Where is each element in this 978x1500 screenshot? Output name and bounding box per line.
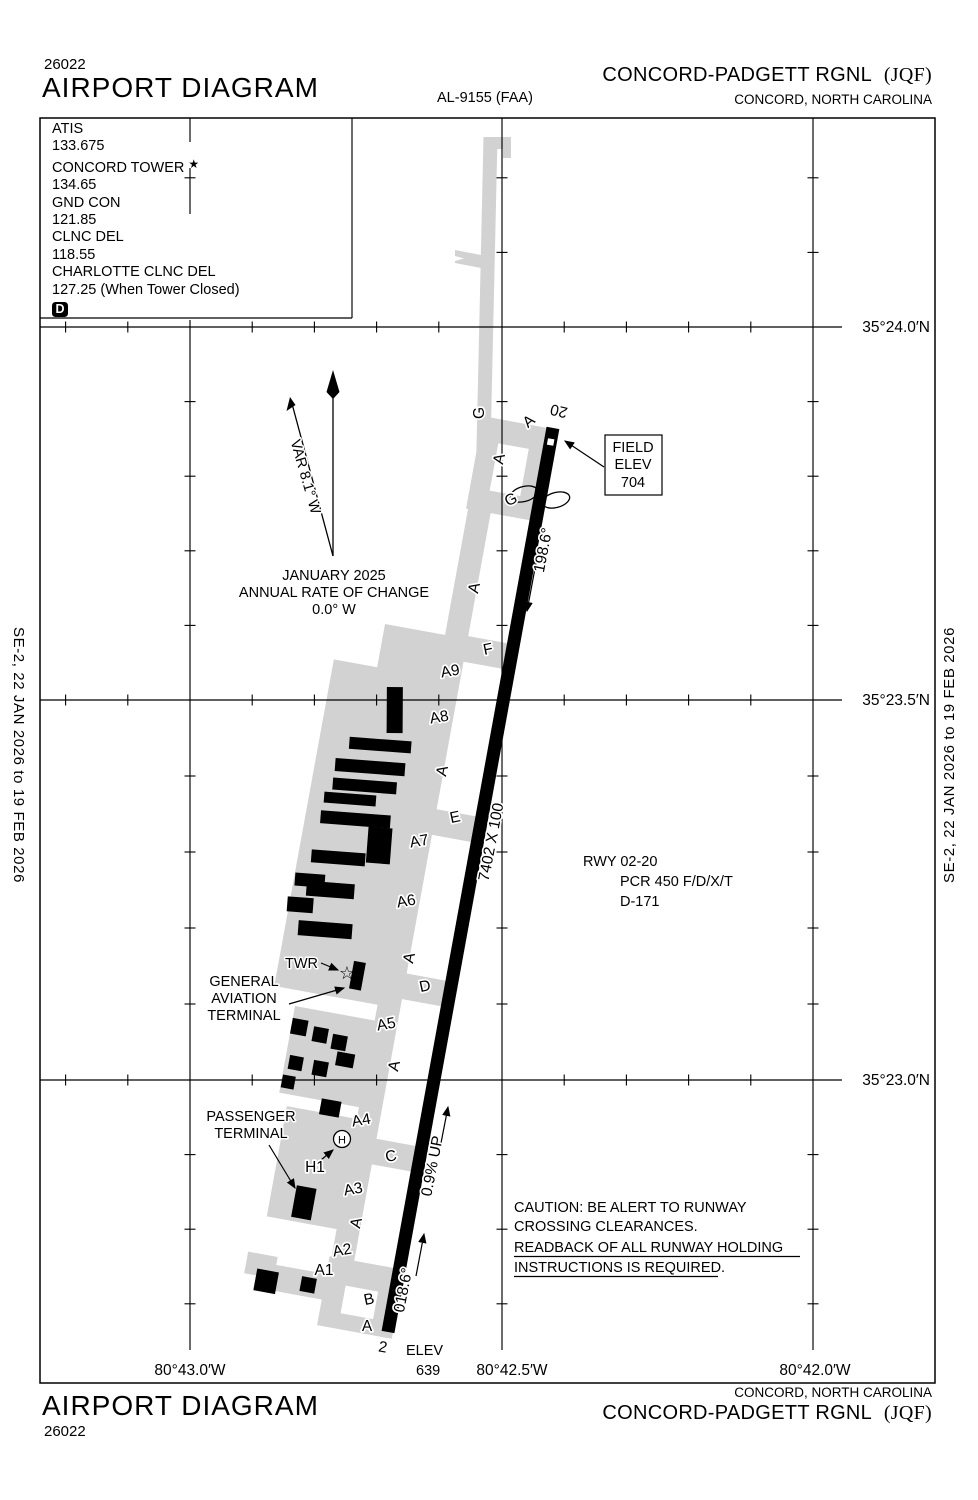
taxiway-a9-label: A9: [439, 662, 461, 682]
h1-label: H1: [305, 1159, 325, 1176]
caution-line2: CROSSING CLEARANCES.: [514, 1219, 698, 1235]
caution-note: CAUTION: BE ALERT TO RUNWAY CROSSING CLE…: [514, 1200, 800, 1277]
twr-label: TWR: [285, 956, 318, 972]
taxiway-a2-label: A2: [331, 1241, 353, 1261]
runway-info-line2: PCR 450 F/D/X/T: [620, 874, 733, 890]
runway-info-line3: D-171: [620, 894, 660, 910]
caution-line3: READBACK OF ALL RUNWAY HOLDING: [514, 1240, 783, 1256]
ga-building: [311, 1060, 328, 1077]
taxiway-a3-label: A3: [342, 1180, 364, 1200]
magnetic-north-arrowhead-icon: [287, 397, 296, 411]
airport-diagram-page: SE-2, 22 JAN 2026 to 19 FEB 2026 SE-2, 2…: [0, 0, 978, 1500]
field-elev-value: 704: [621, 475, 645, 491]
field-elev-line1: FIELD: [612, 440, 653, 456]
taxiway-g-label: G: [471, 407, 488, 419]
field-elev-box: FIELD ELEV 704: [565, 435, 662, 495]
control-tower-star-icon: ☆: [339, 963, 355, 984]
longitude-label: 80°42.0′W: [779, 1362, 851, 1379]
passenger-terminal-label1: PASSENGER: [206, 1109, 295, 1125]
caution-line4: INSTRUCTIONS IS REQUIRED.: [514, 1260, 725, 1276]
north-arrows: VAR 8.1° W JANUARY 2025 ANNUAL RATE OF C…: [239, 370, 429, 618]
taxiway-a6-label: A6: [395, 892, 417, 912]
ga-building: [288, 1055, 304, 1071]
airport-map: ☆ H VAR 8.1° W JANUARY 2025 ANNUAL RATE …: [0, 0, 978, 1500]
ga-terminal-label3: TERMINAL: [207, 1008, 280, 1024]
taxiway-g-hook-tail: [503, 148, 511, 158]
caution-line1: CAUTION: BE ALERT TO RUNWAY: [514, 1200, 747, 1216]
true-north-arrowhead-icon: [327, 370, 340, 399]
taxiway-a-label: A: [362, 1318, 373, 1335]
taxiway-a7-label: A7: [408, 832, 430, 852]
ga-building: [330, 1034, 347, 1051]
ga-building: [281, 1074, 296, 1089]
south-building: [253, 1269, 279, 1295]
taxiway-e-label: E: [448, 808, 462, 827]
ga-terminal-label2: AVIATION: [211, 991, 277, 1007]
rwy2-elev-value: 639: [416, 1363, 440, 1379]
field-elev-line2: ELEV: [614, 457, 651, 473]
variation-epoch: JANUARY 2025: [282, 568, 385, 584]
latitude-label: 35°24.0′N: [862, 319, 930, 336]
variation-rate-value: 0.0° W: [312, 602, 356, 618]
helipad-h-label: H: [338, 1135, 346, 1147]
hangar: [366, 827, 393, 865]
field-elev-arrow: [565, 441, 604, 467]
ga-terminal-label1: GENERAL: [209, 974, 278, 990]
runway-20-threshold-marker: [547, 438, 555, 446]
hdg-018-arrow: [416, 1234, 424, 1276]
latitude-label: 35°23.5′N: [862, 692, 930, 709]
latitude-label: 35°23.0′N: [862, 1072, 930, 1089]
variation-label: VAR 8.1° W: [287, 438, 324, 516]
hangar: [387, 687, 403, 733]
passenger-terminal-label2: TERMINAL: [214, 1126, 287, 1142]
rwy2-elev-label: ELEV: [406, 1343, 443, 1359]
hangar: [287, 896, 314, 913]
taxiway-a4-label: A4: [350, 1110, 372, 1130]
runway-2-number: 2: [377, 1338, 388, 1356]
taxiway-a5-label: A5: [375, 1015, 397, 1035]
ga-building: [311, 1026, 328, 1043]
taxiway-a-label: A: [385, 1059, 404, 1073]
taxiway-a8-label: A8: [428, 708, 450, 728]
runway-info-line1: RWY 02-20: [583, 854, 657, 870]
longitude-label: 80°42.5′W: [476, 1362, 548, 1379]
taxiway-a1-label: A1: [315, 1262, 334, 1279]
runway-20-number: 20: [548, 400, 569, 421]
ga-building: [290, 1018, 309, 1037]
longitude-label: 80°43.0′W: [154, 1362, 226, 1379]
variation-rate-label: ANNUAL RATE OF CHANGE: [239, 585, 429, 601]
